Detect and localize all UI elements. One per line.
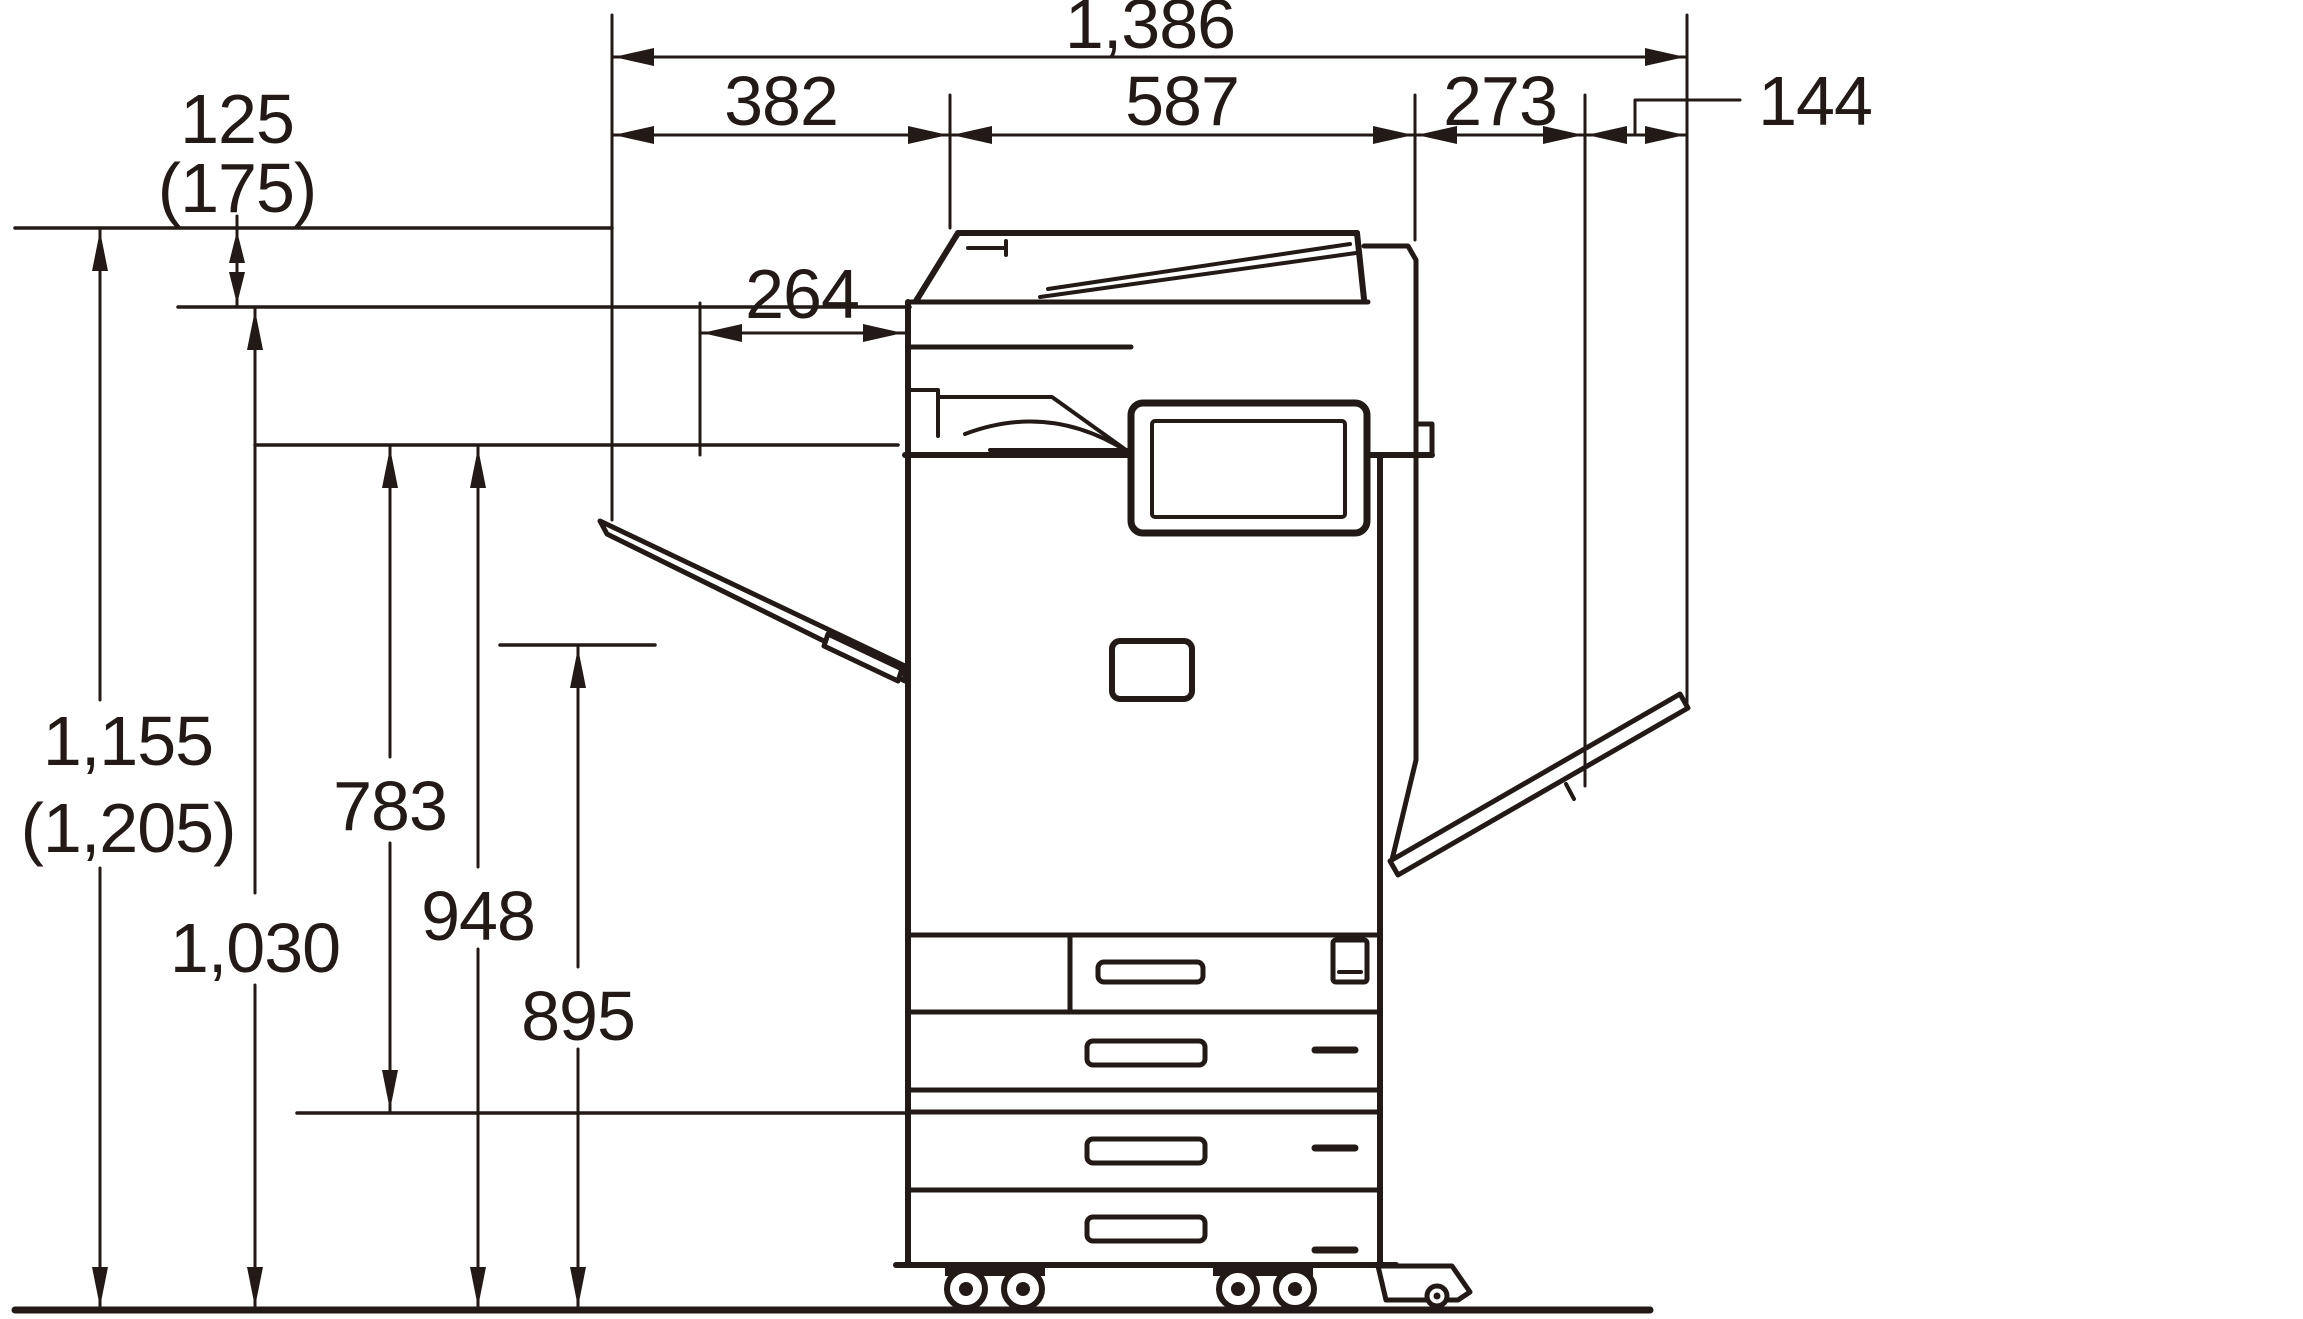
dim-948-label: 948 — [421, 877, 535, 955]
stabilizer-foot — [1378, 1266, 1470, 1300]
dim-144-label: 144 — [1758, 62, 1872, 140]
control-panel — [1131, 403, 1367, 533]
dim-264-label: 264 — [745, 255, 859, 333]
output-sheet-curve — [965, 422, 1128, 452]
arrow-up-icon — [382, 448, 398, 488]
arrow-right-icon — [1373, 126, 1413, 144]
right-tray-panel — [1390, 694, 1688, 875]
adf-feed-detail — [968, 241, 1006, 255]
arrow-left-icon — [614, 126, 654, 144]
stabilizer-hub — [1434, 1293, 1441, 1300]
dim-total-depth-label: 1,386 — [1065, 0, 1235, 63]
dim-382-label: 382 — [724, 62, 838, 140]
dim-273-label: 273 — [1443, 62, 1557, 140]
dim-175-label: (175) — [158, 149, 316, 227]
arrow-up-icon — [247, 310, 263, 350]
dimension-labels: 1,386 382 587 273 144 264 125 (175) 1,15… — [21, 0, 1872, 1055]
adf-left-slant — [916, 233, 958, 301]
casters — [945, 1263, 1470, 1308]
caster-hub — [959, 1282, 973, 1296]
arrow-right-icon — [1645, 126, 1685, 144]
arrow-up-icon — [229, 231, 245, 263]
arrow-right-icon — [1645, 48, 1685, 66]
arrow-down-icon — [382, 1070, 398, 1110]
arrow-down-icon — [229, 272, 245, 304]
bypass-slot-detail — [908, 390, 938, 436]
arrow-right-icon — [863, 324, 903, 342]
drawer-handle-1 — [1098, 962, 1203, 982]
arrow-down-icon — [570, 1267, 586, 1307]
arrow-down-icon — [247, 1267, 263, 1307]
document-feeder-tray-lower — [1040, 253, 1356, 297]
arrow-up-icon — [570, 648, 586, 688]
arrow-right-icon — [908, 126, 948, 144]
drawer-handle-4 — [1087, 1217, 1205, 1241]
arrow-down-icon — [92, 1267, 108, 1307]
right-cover-top — [1364, 246, 1416, 455]
drawer-handle-3 — [1087, 1139, 1205, 1163]
arrow-left-icon — [952, 126, 992, 144]
arrow-up-icon — [92, 231, 108, 271]
arrow-left-icon — [614, 48, 654, 66]
arrow-left-icon — [1587, 126, 1627, 144]
drawer-handle-2 — [1087, 1041, 1205, 1065]
printer-dimension-drawing: 1,386 382 587 273 144 264 125 (175) 1,15… — [0, 0, 2303, 1319]
right-tray-fold-mark — [1566, 784, 1574, 799]
dim-783-label: 783 — [333, 767, 447, 845]
arrow-up-icon — [470, 448, 486, 488]
status-indicator — [1333, 940, 1367, 982]
adf-right-edge — [1357, 233, 1364, 299]
arrow-left-icon — [702, 324, 742, 342]
right-cover-lower — [1392, 455, 1416, 860]
document-feeder-tray-upper — [1048, 244, 1350, 289]
dim-1155-label: 1,155 — [43, 702, 213, 780]
right-side-tray — [1390, 694, 1688, 875]
bypass-tray — [600, 521, 905, 681]
dim-125-label: 125 — [180, 80, 294, 158]
caster-hub — [1288, 1282, 1302, 1296]
control-panel-screen — [1152, 421, 1345, 517]
dim-1030-label: 1,030 — [170, 909, 340, 987]
logo-plate — [1112, 641, 1192, 699]
dim-587-label: 587 — [1125, 62, 1239, 140]
dim-895-label: 895 — [521, 977, 635, 1055]
dimension-diagram: 1,386 382 587 273 144 264 125 (175) 1,15… — [0, 0, 2303, 1319]
arrow-down-icon — [470, 1267, 486, 1307]
caster-hub — [1231, 1282, 1245, 1296]
printer-machine — [15, 233, 1688, 1310]
caster-hub — [1016, 1282, 1030, 1296]
dim-1205-label: (1,205) — [21, 789, 236, 867]
